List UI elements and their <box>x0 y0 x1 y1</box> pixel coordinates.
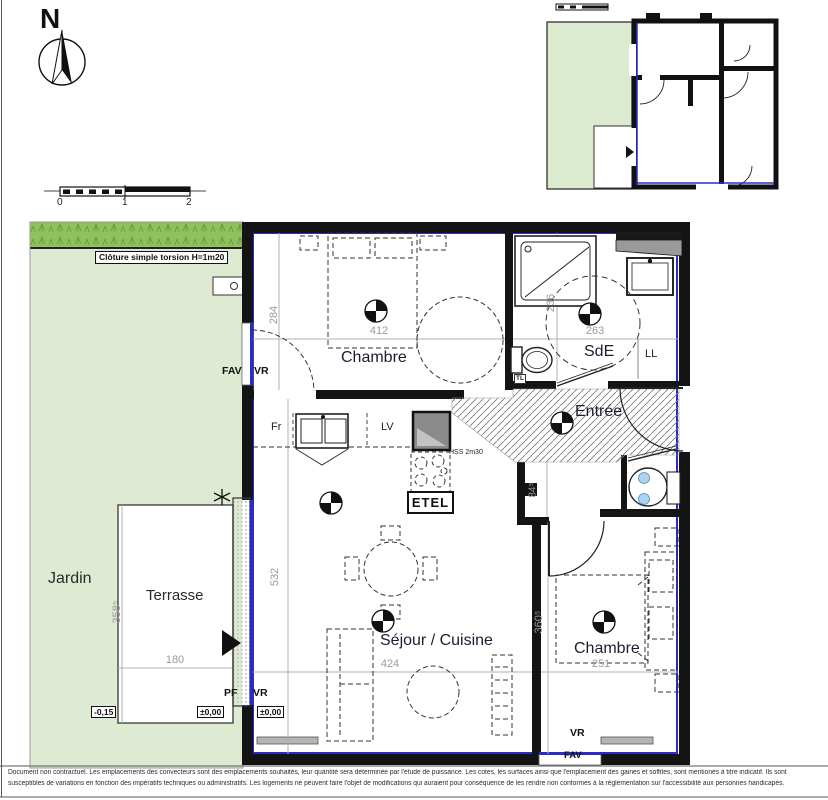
north-arrow <box>39 30 85 85</box>
convector-marker <box>320 492 342 514</box>
living-door-vr-label: VR <box>253 687 268 699</box>
dishwasher-label: LV <box>381 421 394 433</box>
scale-tick-1: 1 <box>122 197 128 208</box>
convector-marker <box>551 412 573 434</box>
convector-marker <box>593 611 615 633</box>
convector-marker <box>579 303 601 325</box>
vanity-top <box>616 232 682 240</box>
fridge-label: Fr <box>271 421 281 433</box>
bedroom2-label: Chambre <box>574 640 640 658</box>
washbasin <box>627 258 673 295</box>
shower-room-depth-dim: 236 <box>545 294 557 312</box>
convector-marker <box>372 610 394 632</box>
living-width-dim: 424 <box>381 658 399 670</box>
convector-marker <box>365 300 387 322</box>
technical-box-label: TL <box>514 374 526 384</box>
terrace-width-dim: 180 <box>166 654 184 666</box>
scale-tick-0: 0 <box>57 197 63 208</box>
bedroom1-depth-dim: 284 <box>268 306 280 324</box>
water-heater-closet <box>629 468 680 506</box>
living-kitchen-label: Séjour / Cuisine <box>380 632 493 650</box>
north-label: N <box>40 3 60 35</box>
terrace <box>118 489 233 723</box>
shower-room-label: SdE <box>584 343 614 361</box>
mini-unit-walls <box>634 21 776 187</box>
bedroom2-window-vr-label: VR <box>570 727 585 739</box>
wall-corridor-west <box>517 462 525 520</box>
terrace-level: ±0,00 <box>197 706 224 718</box>
living-depth-dim: 532 <box>269 568 281 586</box>
fence-note: Clôture simple torsion H=1m20 <box>95 251 228 264</box>
bedroom2-width-dim: 251 <box>592 658 610 670</box>
floor-plan-page: N 0 1 2 Clôture simple torsion H=1m20 Ja… <box>0 0 828 800</box>
shower-room-width-dim: 263 <box>586 325 604 337</box>
terrace-depth-dim: 358⁵ <box>111 601 123 624</box>
bedroom1-window-vr-label: VR <box>254 365 269 377</box>
bedroom2-window-fav-label: FAV <box>564 750 582 761</box>
locator-mini-plan <box>547 4 776 191</box>
bedroom1-window-fav-label: FAV <box>222 365 242 377</box>
wall-living-bedroom2 <box>532 517 541 765</box>
entrance-door-opening <box>679 386 690 452</box>
garden-label: Jardin <box>48 570 92 588</box>
bedroom2-depth-dim: 360⁵ <box>533 611 545 634</box>
interior-level: ±0,00 <box>257 706 284 718</box>
disclaimer-line-1: Document non contractuel. Les emplacemen… <box>8 769 787 776</box>
utility-box <box>213 277 243 295</box>
radiator-bedroom2 <box>601 737 653 744</box>
garden-level: -0,15 <box>91 706 116 718</box>
terrace-label: Terrasse <box>146 587 204 604</box>
bedroom1-width-dim: 412 <box>370 325 388 337</box>
wall-closet-south <box>600 509 690 517</box>
bedroom1-window <box>242 323 253 385</box>
toilet-tank <box>511 347 522 373</box>
scale-tick-2: 2 <box>186 197 192 208</box>
wall-closet-west <box>621 455 627 513</box>
washer-label: LL <box>645 348 657 360</box>
etel-label: ETEL <box>408 494 453 512</box>
soffit-height-label: HSS 2m30 <box>449 449 483 456</box>
living-door-pf-label: PF <box>224 687 237 699</box>
disclaimer-line-2: susceptibles de variations en fonction d… <box>8 780 784 787</box>
corridor-dim: 84⁵ <box>528 482 539 497</box>
entry-label: Entrée <box>575 403 622 421</box>
bedroom1-label: Chambre <box>341 349 407 367</box>
floor-plan-drawing <box>0 0 828 800</box>
